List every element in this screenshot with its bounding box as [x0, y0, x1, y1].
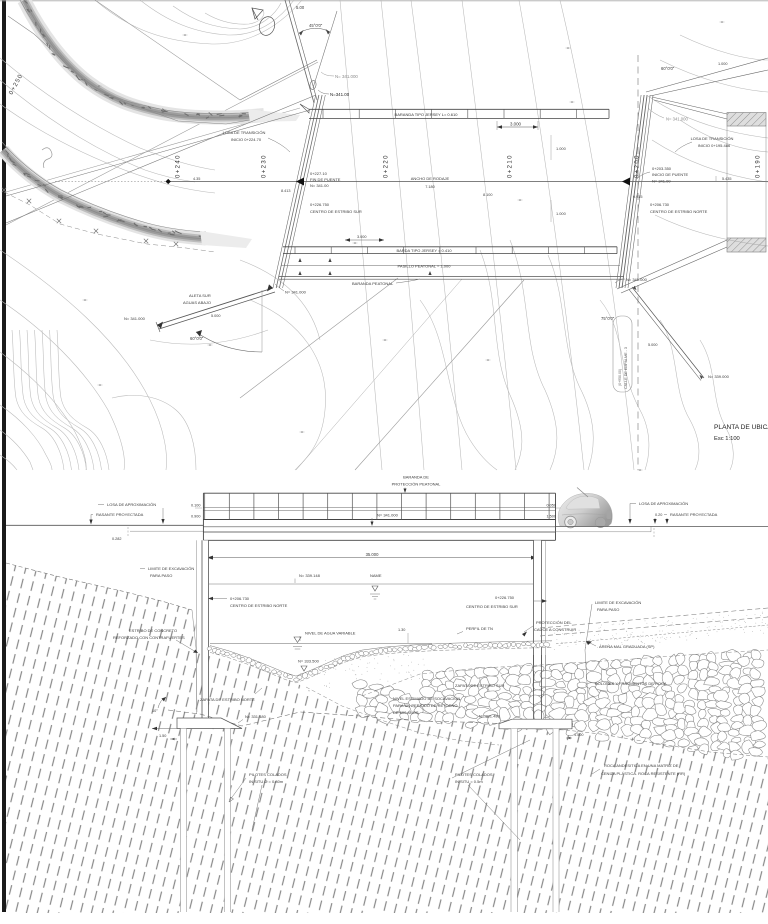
svg-text:PROTECCIÓN PEATONAL: PROTECCIÓN PEATONAL	[392, 482, 442, 487]
svg-text:45°0'0": 45°0'0"	[309, 23, 323, 28]
svg-text:CENIZA PLÁSTICA. ROCA RESISTEN: CENIZA PLÁSTICA. ROCA RESISTENTE (RR)	[601, 771, 686, 776]
svg-text:1.000: 1.000	[556, 146, 567, 151]
svg-text:0.282: 0.282	[112, 537, 122, 541]
svg-text:0+240: 0+240	[176, 154, 182, 178]
svg-text:0.915: 0.915	[633, 195, 643, 199]
svg-text:ALETA SUR: ALETA SUR	[189, 293, 211, 298]
svg-text:INICIO 0+224.70: INICIO 0+224.70	[231, 137, 262, 142]
svg-text:0+206.730: 0+206.730	[650, 202, 670, 207]
svg-text:PARA PASO: PARA PASO	[150, 573, 172, 578]
svg-text:RASANTE PROYECTADA: RASANTE PROYECTADA	[96, 512, 144, 517]
svg-text:75°0'0": 75°0'0"	[601, 316, 615, 321]
svg-text:PLANTA DE UBICACIÓN: PLANTA DE UBICACIÓN	[714, 422, 768, 431]
svg-text:0+226.750: 0+226.750	[495, 595, 515, 600]
svg-text:PROTECCIÓN DEL: PROTECCIÓN DEL	[536, 620, 572, 625]
svg-text:1.500: 1.500	[574, 733, 584, 737]
svg-text:1.30: 1.30	[398, 628, 405, 632]
svg-text:BARDA TIPO JERSEY = 0.410: BARDA TIPO JERSEY = 0.410	[396, 248, 452, 253]
svg-text:CENTRO DE ESTRIBO SUR: CENTRO DE ESTRIBO SUR	[466, 604, 518, 609]
svg-text:1.000: 1.000	[556, 211, 567, 216]
svg-text:LOSA DE APROXIMACIÓN: LOSA DE APROXIMACIÓN	[107, 502, 156, 507]
svg-text:N= 341.000: N= 341.000	[335, 74, 358, 79]
svg-text:N= 341.000: N= 341.000	[666, 117, 688, 122]
svg-text:N= 341.00: N= 341.00	[310, 183, 329, 188]
svg-text:N= 333.500: N= 333.500	[298, 659, 320, 664]
svg-text:BOLONES Y FRAGMENTOS DE ROCA: BOLONES Y FRAGMENTOS DE ROCA	[595, 681, 667, 686]
svg-text:8.413: 8.413	[281, 189, 291, 193]
svg-text:N= 331.480: N= 331.480	[479, 714, 501, 719]
svg-text:N= 341.00: N= 341.00	[652, 179, 671, 184]
svg-text:PARA PASO: PARA PASO	[597, 607, 619, 612]
svg-text:N= 341.000: N= 341.000	[626, 277, 648, 282]
svg-text:ROCA ANDESITICA EN UNA MATRIZ: ROCA ANDESITICA EN UNA MATRIZ DE	[604, 763, 679, 768]
svg-text:60°0'0": 60°0'0"	[661, 66, 675, 71]
svg-text:IN SITU = 0.5m: IN SITU = 0.5m	[455, 779, 483, 784]
svg-text:BARANDA TIPO JERSEY L= 0.610: BARANDA TIPO JERSEY L= 0.610	[395, 112, 459, 117]
svg-text:0+227.10: 0+227.10	[310, 171, 328, 176]
svg-text:0+230: 0+230	[262, 154, 268, 178]
svg-text:REFORZADO CON CONTRAFUERTES: REFORZADO CON CONTRAFUERTES	[113, 635, 185, 640]
svg-text:ESTRIBO DE CONCRETO: ESTRIBO DE CONCRETO	[129, 628, 177, 633]
svg-text:ZAPATA DE ESTRIBO SUR: ZAPATA DE ESTRIBO SUR	[455, 683, 504, 688]
svg-text:NAME: NAME	[370, 573, 382, 578]
svg-text:CENTRO DE ESTRIBO NORTE: CENTRO DE ESTRIBO NORTE	[230, 603, 288, 608]
svg-text:N= 341.000: N= 341.000	[285, 290, 307, 295]
svg-text:N=341.00: N=341.00	[330, 92, 350, 97]
svg-text:5.000: 5.000	[211, 314, 221, 318]
svg-text:LOSA DE APROXIMACIÓN: LOSA DE APROXIMACIÓN	[639, 501, 688, 506]
svg-text:7.180: 7.180	[425, 185, 435, 189]
svg-text:0+203.350: 0+203.350	[652, 166, 672, 171]
svg-text:LOSA DE TRANSICIÓN: LOSA DE TRANSICIÓN	[223, 130, 266, 135]
svg-text:1.500: 1.500	[546, 515, 556, 519]
svg-text:0+220: 0+220	[384, 154, 390, 178]
svg-text:60°0'0": 60°0'0"	[190, 336, 204, 341]
svg-text:1.000: 1.000	[718, 62, 728, 66]
svg-text:CALLE DE EMPALME - 3: CALLE DE EMPALME - 3	[624, 347, 628, 389]
svg-text:LOSA DE TRANSICIÓN: LOSA DE TRANSICIÓN	[691, 136, 734, 141]
svg-text:PASILLO PEATONAL = 1.000: PASILLO PEATONAL = 1.000	[398, 263, 452, 268]
svg-text:10°: 10°	[152, 709, 158, 713]
svg-text:5.435: 5.435	[722, 177, 732, 181]
svg-text:NIVEL DE AGUA VARIABLE: NIVEL DE AGUA VARIABLE	[305, 631, 356, 636]
svg-text:8.100: 8.100	[483, 193, 493, 197]
svg-text:(0+950.00): (0+950.00)	[618, 369, 622, 386]
svg-text:N= 341.000: N= 341.000	[377, 513, 399, 518]
svg-text:PARA UN PERIODO DE RETORNO: PARA UN PERIODO DE RETORNO	[393, 703, 458, 708]
svg-text:LIMITE DE EXCAVACIÓN: LIMITE DE EXCAVACIÓN	[595, 600, 641, 605]
svg-text:NIVEL ESTIMADO DE SOCAVACIÓN: NIVEL ESTIMADO DE SOCAVACIÓN	[393, 696, 460, 701]
svg-text:INICIO 0+195.486: INICIO 0+195.486	[698, 143, 731, 148]
svg-text:FIN DE PUENTE: FIN DE PUENTE	[310, 177, 341, 182]
svg-text:0+190: 0+190	[756, 154, 762, 178]
svg-text:35.000: 35.000	[366, 552, 379, 557]
svg-text:IN SITU Ø = 0.80m: IN SITU Ø = 0.80m	[249, 779, 284, 784]
svg-text:PERFIL DE TN: PERFIL DE TN	[466, 626, 493, 631]
svg-text:0.20: 0.20	[655, 513, 662, 517]
svg-text:ARENA MAL GRADUADA (SP): ARENA MAL GRADUADA (SP)	[599, 644, 655, 649]
svg-text:Esc 1:100: Esc 1:100	[714, 436, 740, 442]
svg-text:CENTRO DE ESTRIBO SUR: CENTRO DE ESTRIBO SUR	[310, 209, 362, 214]
svg-text:0+210: 0+210	[508, 154, 514, 178]
svg-text:LIMITE DE EXCAVACIÓN: LIMITE DE EXCAVACIÓN	[148, 566, 194, 571]
svg-text:CENTRO DE ESTRIBO NORTE: CENTRO DE ESTRIBO NORTE	[650, 209, 708, 214]
svg-text:1.50: 1.50	[159, 734, 166, 738]
svg-text:5.00: 5.00	[296, 5, 305, 10]
svg-text:ZAPATA DE ESTRIBO NORTE: ZAPATA DE ESTRIBO NORTE	[200, 697, 255, 702]
svg-text:RASANTE PROYECTADA: RASANTE PROYECTADA	[670, 512, 718, 517]
svg-text:ANCHO DE RODAJE: ANCHO DE RODAJE	[411, 176, 450, 181]
svg-text:3.000: 3.000	[357, 235, 367, 239]
svg-text:AGUAS ABAJO: AGUAS ABAJO	[183, 300, 211, 305]
svg-text:BARANDA DE: BARANDA DE	[403, 475, 429, 480]
svg-text:BARANDA PEATONAL: BARANDA PEATONAL	[352, 281, 394, 286]
svg-text:4.35: 4.35	[193, 177, 200, 181]
svg-text:PILOTES COLADOS: PILOTES COLADOS	[249, 772, 287, 777]
svg-text:DE 500 AÑOS: DE 500 AÑOS	[393, 710, 419, 715]
svg-text:5.000: 5.000	[648, 343, 658, 347]
svg-text:0.100: 0.100	[191, 504, 201, 508]
svg-text:0.900: 0.900	[191, 515, 201, 519]
svg-text:N= 331.480: N= 331.480	[245, 714, 267, 719]
svg-text:3.000: 3.000	[510, 122, 522, 127]
svg-text:0.050: 0.050	[546, 504, 556, 508]
svg-text:INICIO DE PUENTE: INICIO DE PUENTE	[652, 172, 689, 177]
svg-text:N= 339.148: N= 339.148	[299, 573, 321, 578]
svg-text:0+226.750: 0+226.750	[310, 202, 330, 207]
svg-text:0+206.730: 0+206.730	[230, 596, 250, 601]
svg-text:N= 341.000: N= 341.000	[124, 316, 146, 321]
svg-text:N= 339.000: N= 339.000	[708, 374, 730, 379]
svg-text:PILOTES COLADOS: PILOTES COLADOS	[455, 772, 493, 777]
